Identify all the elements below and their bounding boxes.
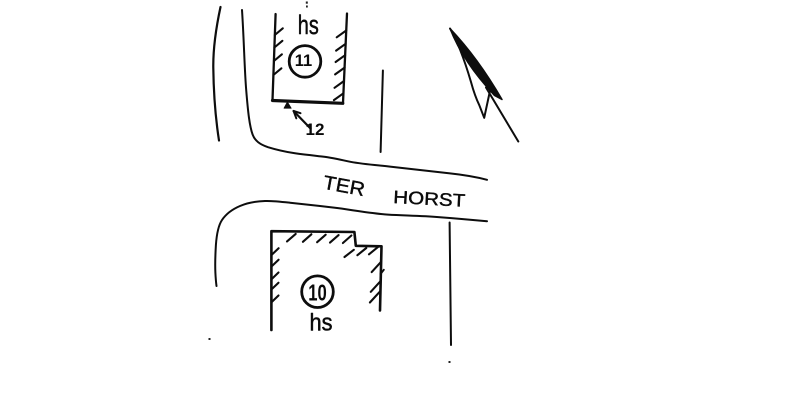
svg-text:HORST: HORST [393,187,466,211]
svg-text:TER: TER [321,172,366,201]
svg-text:10: 10 [308,280,327,306]
svg-text:12: 12 [306,120,325,139]
svg-text:11: 11 [295,52,312,70]
svg-text:hs: hs [310,310,333,337]
svg-text:hs: hs [298,10,319,40]
